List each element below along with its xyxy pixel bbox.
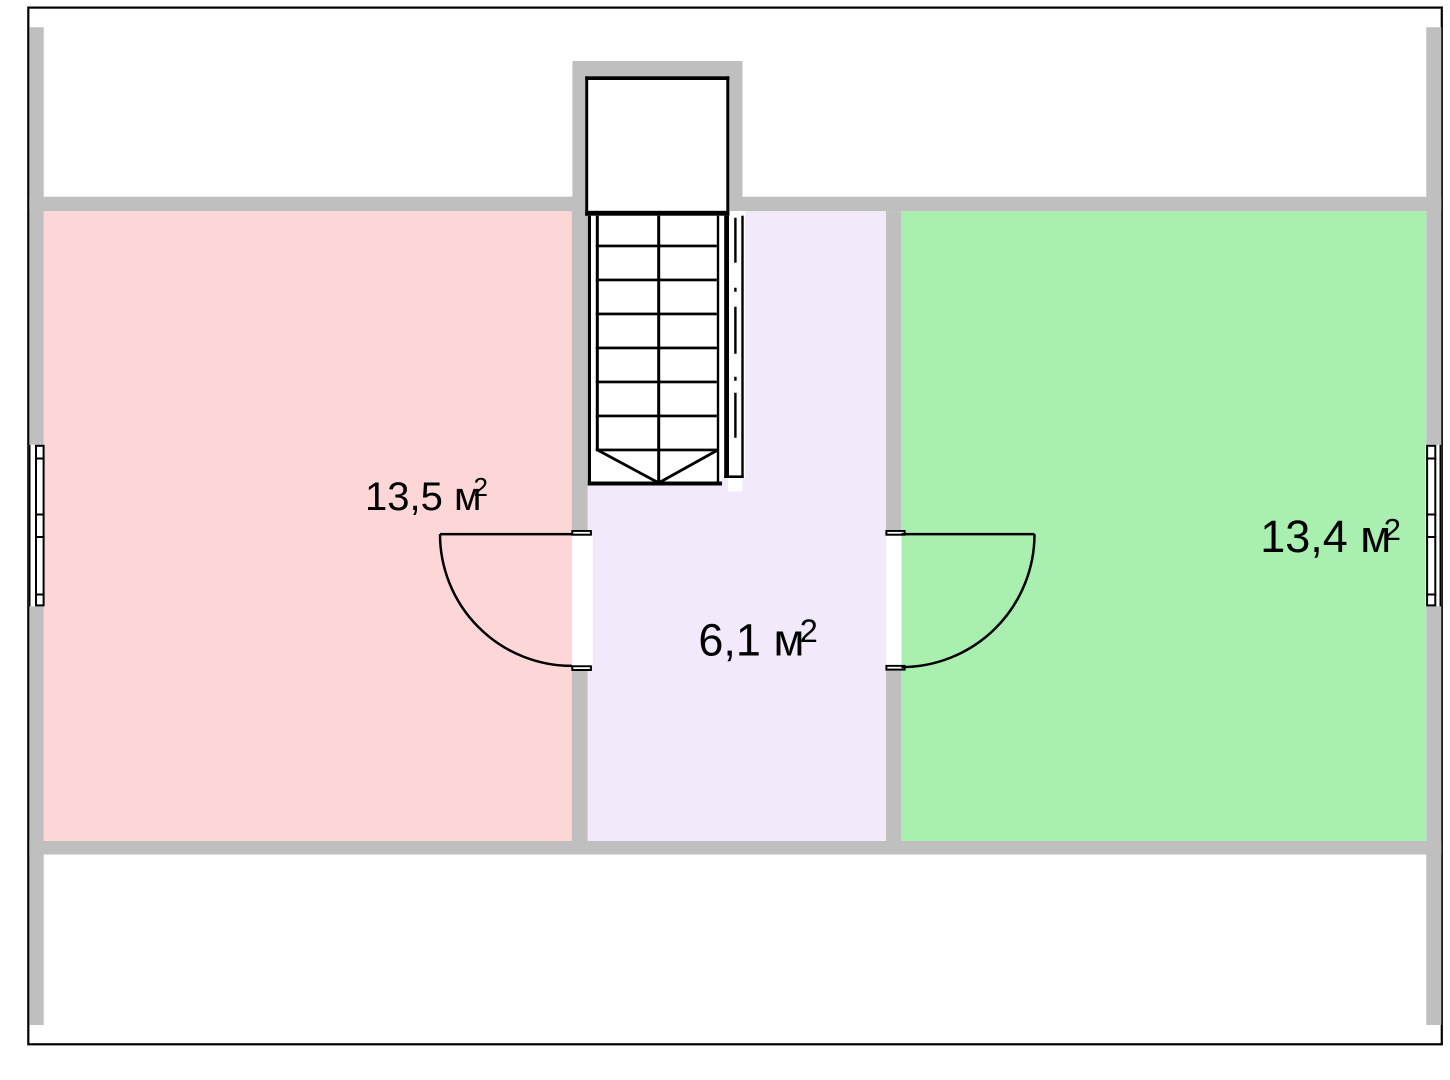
svg-text:13,5 м: 13,5 м bbox=[365, 475, 481, 519]
svg-text:2: 2 bbox=[800, 613, 818, 649]
svg-text:2: 2 bbox=[1384, 512, 1401, 547]
svg-text:2: 2 bbox=[474, 472, 488, 502]
svg-text:6,1 м: 6,1 м bbox=[698, 615, 804, 666]
svg-text:13,4 м: 13,4 м bbox=[1260, 511, 1391, 562]
